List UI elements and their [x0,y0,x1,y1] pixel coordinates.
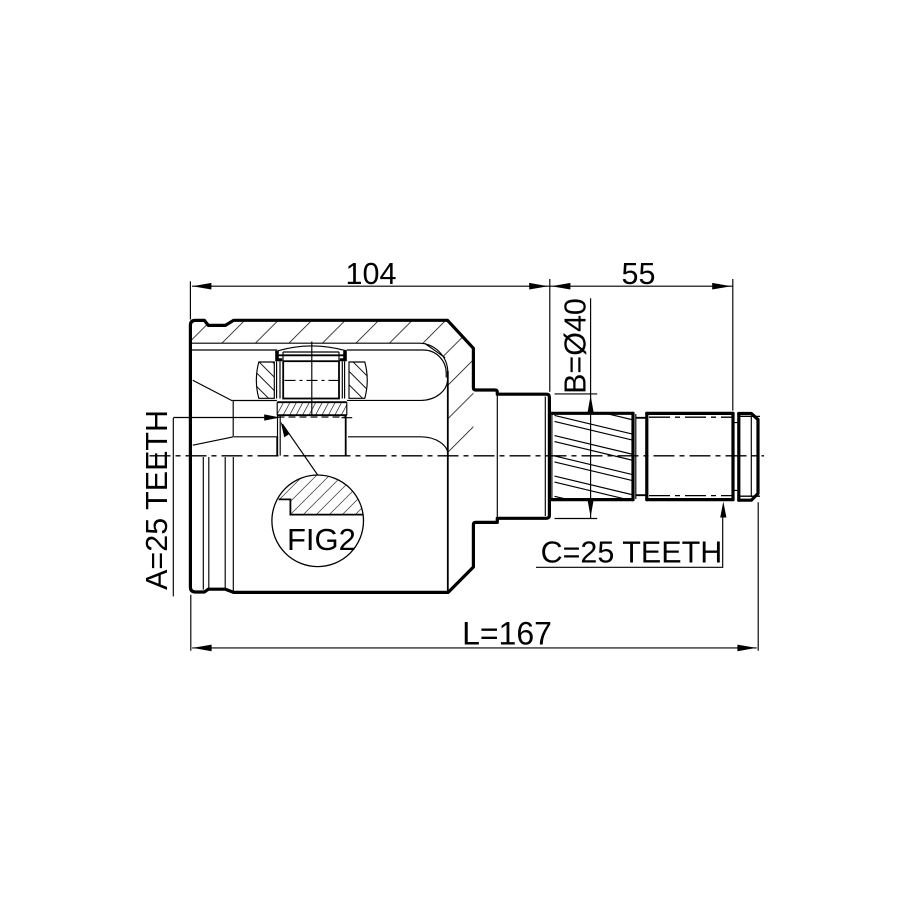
svg-text:55: 55 [622,257,656,291]
svg-text:C=25 TEETH: C=25 TEETH [541,536,723,570]
svg-text:FIG2: FIG2 [287,522,356,557]
svg-text:104: 104 [346,257,397,291]
svg-text:A=25 TEETH: A=25 TEETH [140,410,174,590]
svg-text:L=167: L=167 [462,615,552,651]
svg-text:B=Ø40: B=Ø40 [559,298,593,394]
